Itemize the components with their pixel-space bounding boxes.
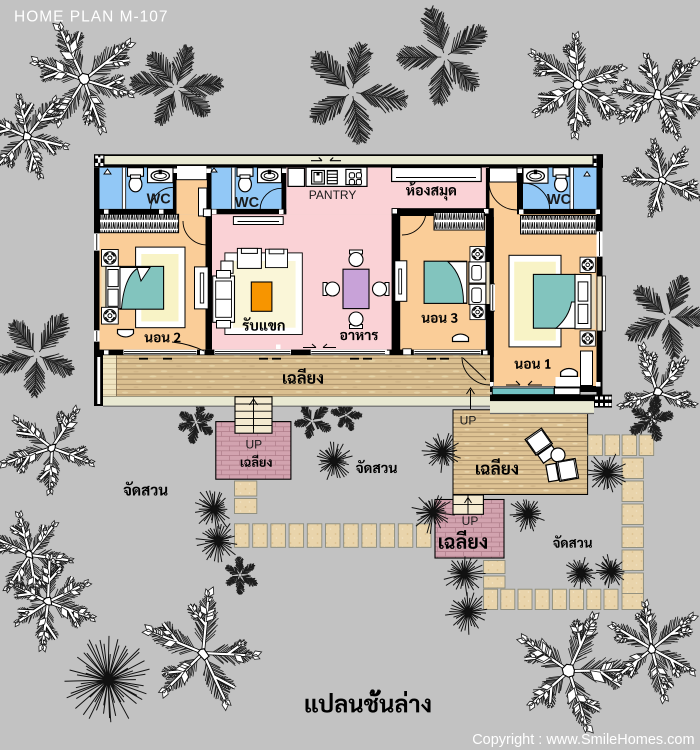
svg-text:UP: UP: [245, 438, 262, 452]
svg-text:UP: UP: [460, 414, 477, 428]
svg-text:PANTRY: PANTRY: [309, 188, 357, 202]
svg-text:WC: WC: [235, 195, 260, 211]
svg-text:HOME PLAN M-107: HOME PLAN M-107: [14, 9, 169, 26]
svg-text:Copyright : www.SmileHomes.com: Copyright : www.SmileHomes.com: [472, 732, 694, 748]
svg-text:WC: WC: [147, 192, 172, 208]
svg-text:WC: WC: [547, 192, 572, 208]
svg-text:UP: UP: [462, 514, 479, 528]
